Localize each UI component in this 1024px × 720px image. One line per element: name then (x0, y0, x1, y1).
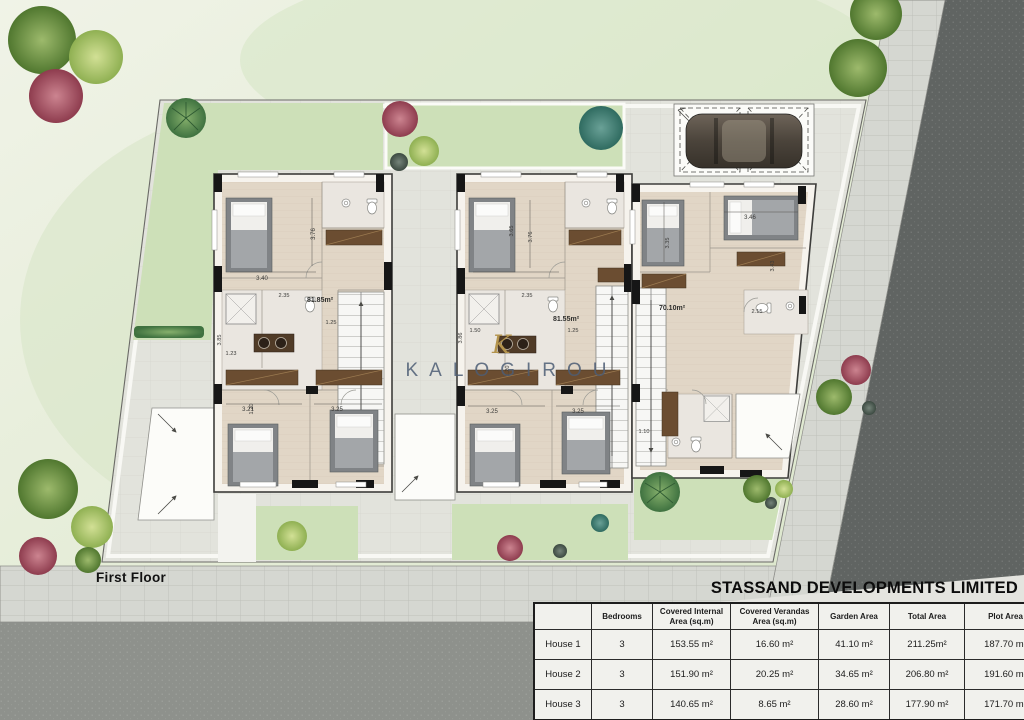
sink-icon (786, 302, 794, 310)
bush-icon (775, 480, 793, 498)
tree-icon (8, 6, 76, 74)
toilet-icon (607, 199, 617, 214)
cell: House 1 (534, 630, 592, 660)
bush-icon (816, 379, 852, 415)
cell: 20.25 m² (731, 660, 819, 690)
shower-icon (704, 396, 730, 422)
tree-icon (18, 459, 78, 519)
tree-icon (69, 30, 123, 84)
cell: 3 (592, 690, 653, 720)
toilet-icon (548, 297, 558, 312)
dim-label: 3.76 (311, 228, 317, 240)
cell: 151.90 m² (653, 660, 731, 690)
terrace-middle (395, 414, 455, 500)
palm-icon (640, 472, 680, 512)
bush-icon (591, 514, 609, 532)
cell: 41.10 m² (819, 630, 890, 660)
bush-icon (862, 401, 876, 415)
lawn-house1-rear (256, 506, 358, 560)
kalogirou-watermark: KALOGIROU (388, 360, 624, 382)
toilet-icon (367, 199, 377, 214)
palm-icon (166, 98, 206, 138)
dim-label: 3.85 (217, 335, 223, 346)
tree-icon (71, 506, 113, 548)
bed-icon (226, 198, 272, 272)
lawn-house2-rear (452, 504, 628, 560)
table-row-house2: House 2 3 151.90 m² 20.25 m² 34.65 m² 20… (534, 660, 1024, 690)
site-plan-page: 3.40 3.76 2.35 3.85 1.23 1.20 1.25 81.85… (0, 0, 1024, 720)
house-3-plan: 3.46 3.35 3.43 70.10m² 2.15 1.10 (630, 182, 816, 478)
terrace-house3 (736, 394, 800, 458)
cell: 153.55 m² (653, 630, 731, 660)
dim-label: 2.15 (752, 309, 763, 315)
cell: 187.70 m² (965, 630, 1024, 660)
bush-icon (497, 535, 523, 561)
kalogirou-monogram: K (492, 330, 511, 359)
cell: House 3 (534, 690, 592, 720)
cell: 3 (592, 660, 653, 690)
dim-label: 3.25 (486, 409, 498, 415)
cell: 3 (592, 630, 653, 660)
toilet-icon (691, 437, 701, 452)
bush-icon (409, 136, 439, 166)
cell: 28.60 m² (819, 690, 890, 720)
table-header-row: Bedrooms Covered Internal Area (sq.m) Co… (534, 603, 1024, 630)
bed-icon (330, 410, 378, 472)
tree-icon (579, 106, 623, 150)
col-header-plot-area: Plot Area (965, 603, 1024, 630)
area-label-house1: 81.85m² (307, 297, 334, 304)
tree-icon (829, 39, 887, 97)
dim-label: 3.43 (770, 261, 776, 272)
floor-label: First Floor (96, 570, 166, 585)
sink-icon (582, 199, 590, 207)
path-house1-rear (218, 494, 256, 562)
dim-label: 2.35 (522, 293, 533, 299)
bed-icon (470, 424, 520, 486)
cell: 8.65 m² (731, 690, 819, 720)
bush-icon (390, 153, 408, 171)
col-header-total-area: Total Area (890, 603, 965, 630)
dim-label: 3.65 (509, 226, 515, 237)
col-header-internal-area: Covered Internal Area (sq.m) (653, 603, 731, 630)
area-label-house3: 70.10m² (659, 305, 686, 312)
cell: 140.65 m² (653, 690, 731, 720)
cell: 171.70 m² (965, 690, 1024, 720)
bed-icon (228, 424, 278, 486)
developer-title: STASSAND DEVELOPMENTS LIMITED (700, 579, 1018, 598)
col-header-bedrooms: Bedrooms (592, 603, 653, 630)
dim-label: 1.10 (639, 429, 650, 435)
car-icon (686, 114, 802, 168)
bed-icon (562, 412, 610, 474)
dim-label: 3.35 (665, 238, 671, 249)
cell: 177.90 m² (890, 690, 965, 720)
bush-icon (382, 101, 418, 137)
shower-icon (469, 294, 499, 324)
table-row-house1: House 1 3 153.55 m² 16.60 m² 41.10 m² 21… (534, 630, 1024, 660)
dim-label: 3.40 (256, 276, 268, 282)
hedge (134, 326, 204, 338)
bush-icon (841, 355, 871, 385)
dim-label: 3.76 (528, 232, 534, 243)
house-1-plan: 3.40 3.76 2.35 3.85 1.23 1.20 1.25 81.85… (212, 172, 392, 492)
dim-label: 2.35 (279, 293, 290, 299)
dim-label: 3.46 (744, 215, 756, 221)
cell: 16.60 m² (731, 630, 819, 660)
area-label-house2: 81.55m² (553, 316, 580, 323)
bed-icon (642, 200, 684, 266)
dim-label: 3.25 (331, 407, 343, 413)
col-header-garden-area: Garden Area (819, 603, 890, 630)
bush-icon (19, 537, 57, 575)
dim-label: 3.25 (572, 409, 584, 415)
bush-icon (765, 497, 777, 509)
dim-label: 3.21 (242, 407, 254, 413)
col-header-blank (534, 603, 592, 630)
dim-label: 1.25 (326, 320, 337, 326)
shower-icon (226, 294, 256, 324)
house-area-table: Bedrooms Covered Internal Area (sq.m) Co… (533, 602, 1024, 720)
dim-label: 1.25 (568, 328, 579, 334)
dim-label: 3.86 (458, 333, 464, 344)
cell: 211.25m² (890, 630, 965, 660)
sink-icon (342, 199, 350, 207)
sink-icon (672, 438, 680, 446)
col-header-verandas-area: Covered Verandas Area (sq.m) (731, 603, 819, 630)
bush-icon (553, 544, 567, 558)
cell: 191.60 m² (965, 660, 1024, 690)
house-2-plan: 3.65 3.76 2.35 1.50 3.86 1.25 81.55m² 1.… (455, 172, 632, 492)
table-row-house3: House 3 3 140.65 m² 8.65 m² 28.60 m² 177… (534, 690, 1024, 720)
dim-label: 1.50 (470, 328, 481, 334)
bed-icon (724, 196, 798, 240)
cell: 206.80 m² (890, 660, 965, 690)
cell: 34.65 m² (819, 660, 890, 690)
bush-icon (277, 521, 307, 551)
vanity-icon (254, 334, 294, 352)
dim-label: 1.23 (226, 351, 237, 357)
cell: House 2 (534, 660, 592, 690)
bush-icon (29, 69, 83, 123)
